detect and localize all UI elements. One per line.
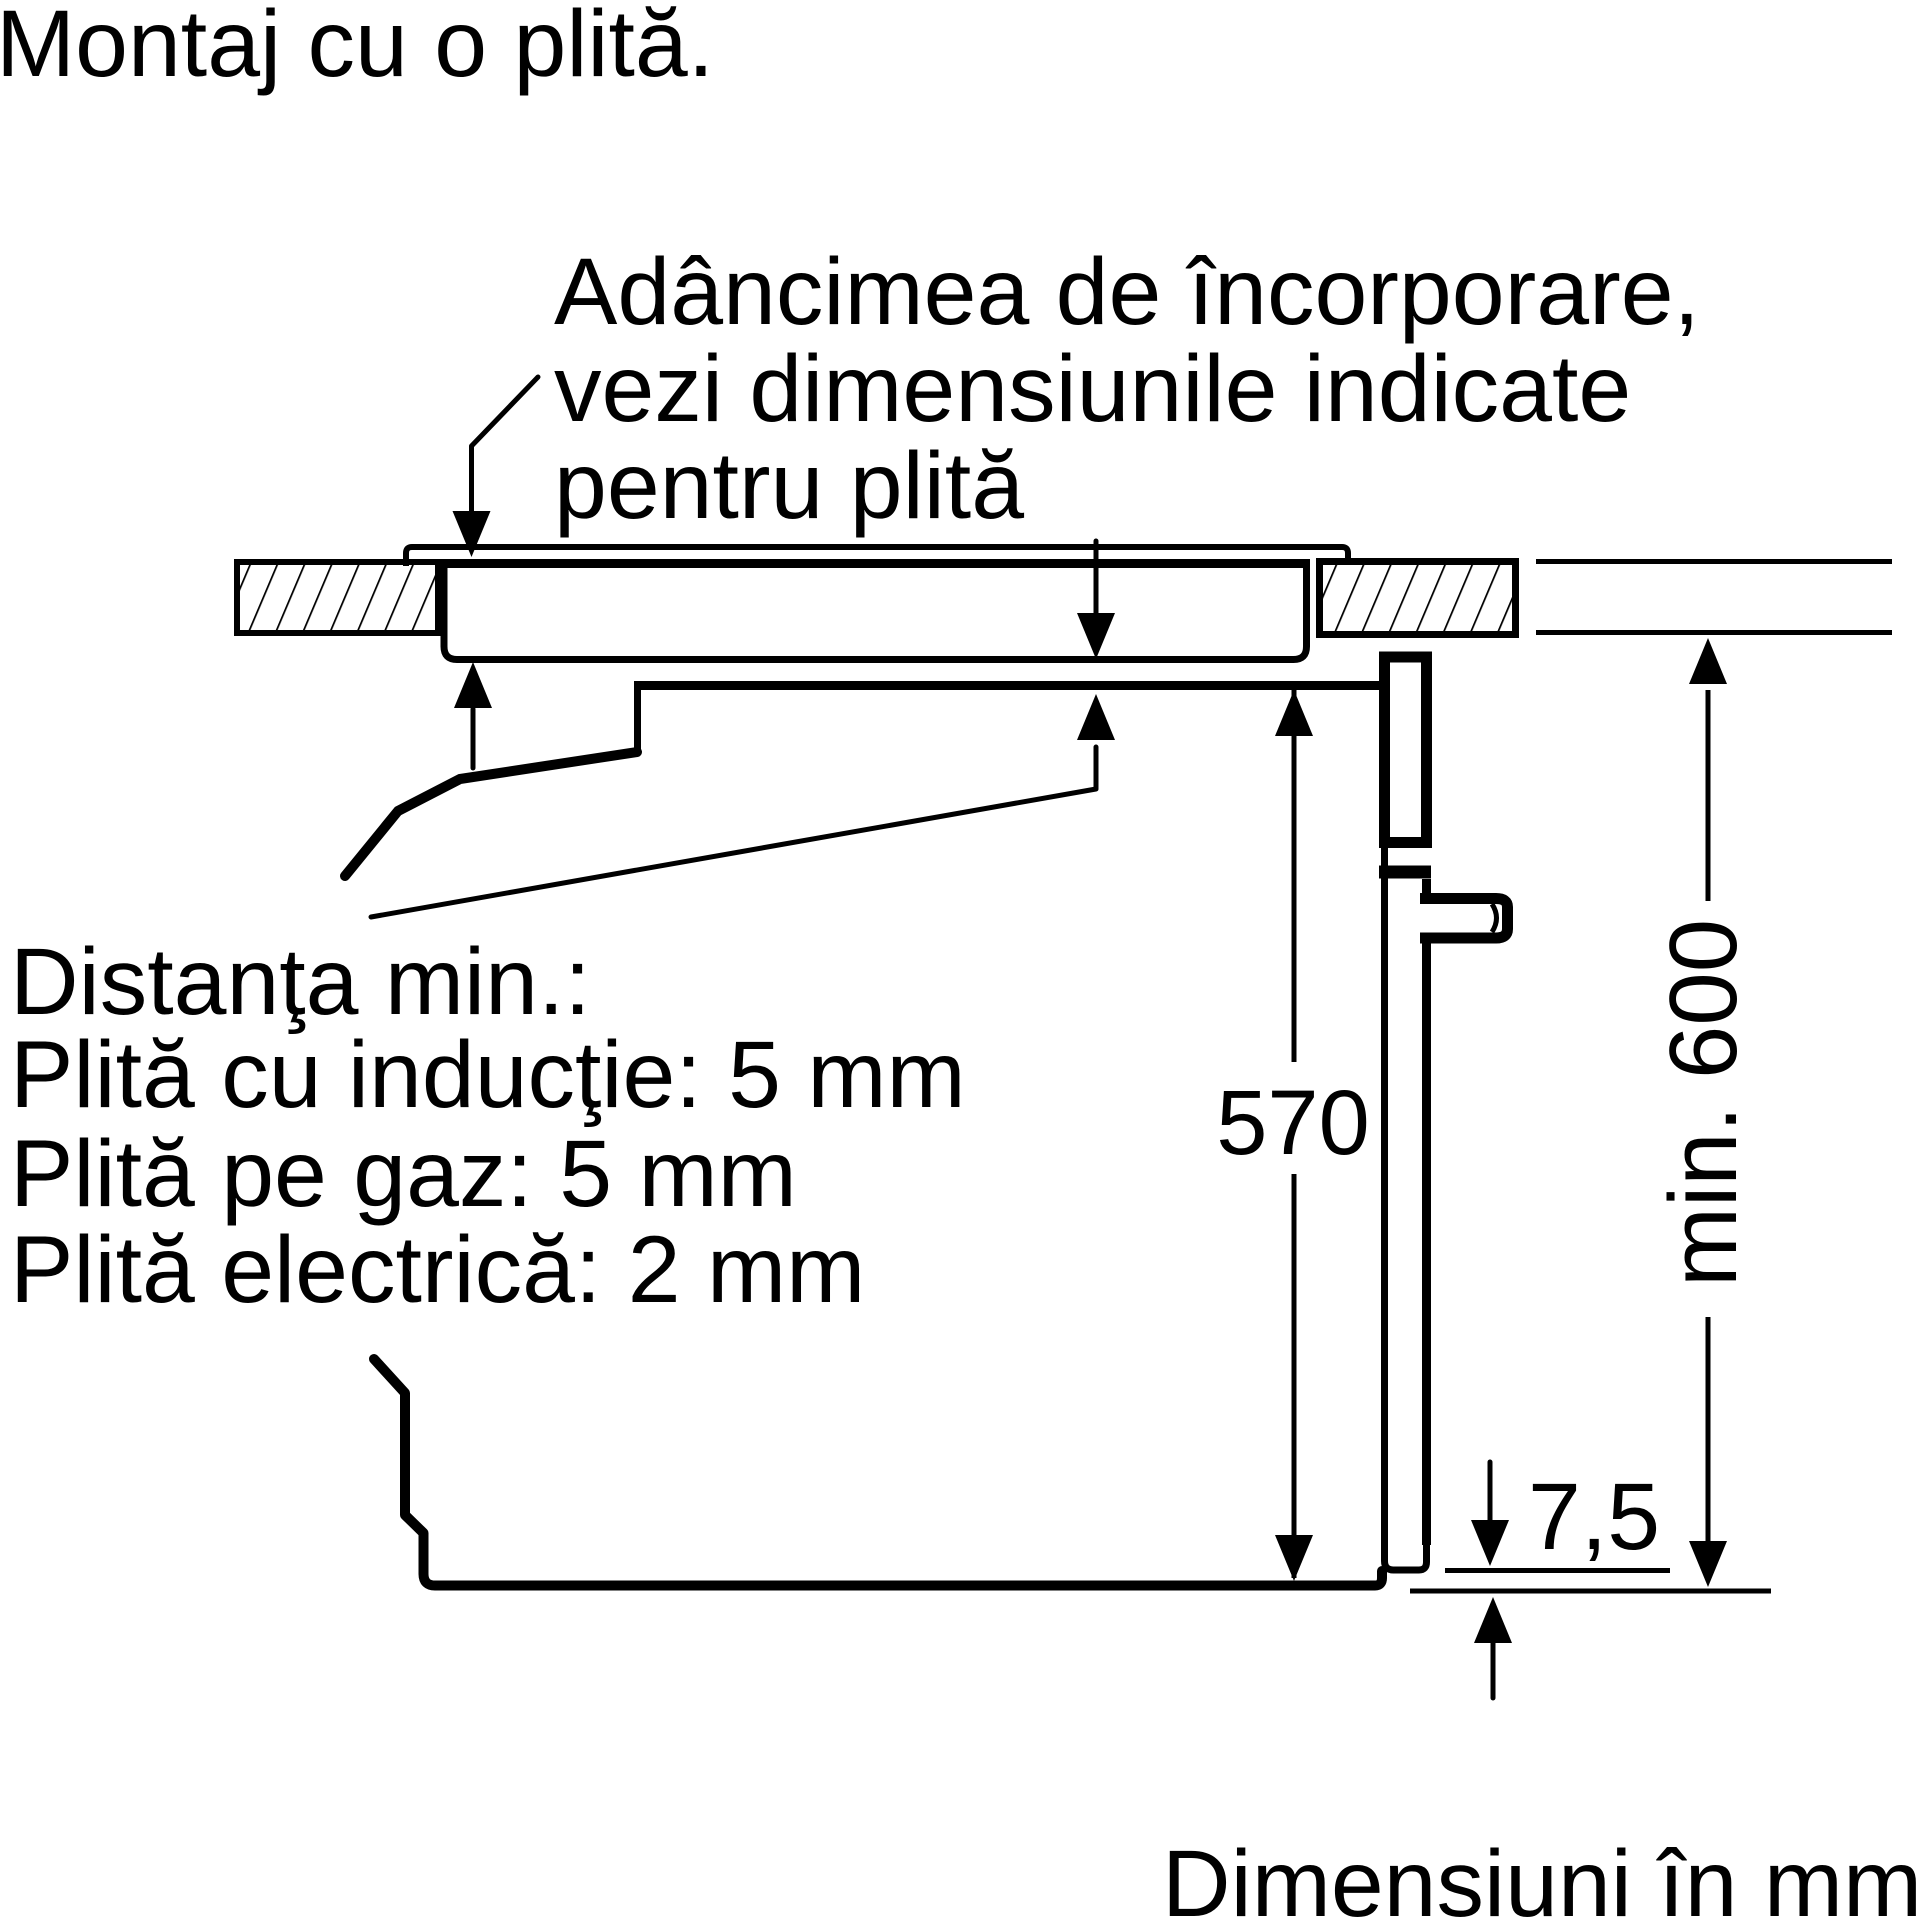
svg-text:Plită pe gaz: 5 mm: Plită pe gaz: 5 mm: [10, 1121, 797, 1227]
svg-text:Adâncimea de încorporare,: Adâncimea de încorporare,: [554, 239, 1700, 345]
svg-text:Distanţa min.:: Distanţa min.:: [10, 929, 591, 1035]
svg-text:7,5: 7,5: [1528, 1464, 1660, 1570]
svg-text:Plită electrică: 2 mm: Plită electrică: 2 mm: [10, 1217, 865, 1323]
svg-text:570: 570: [1216, 1072, 1370, 1174]
svg-text:min. 600: min. 600: [1650, 919, 1757, 1287]
svg-text:Plită cu inducţie: 5 mm: Plită cu inducţie: 5 mm: [10, 1022, 966, 1128]
svg-text:Dimensiuni în mm: Dimensiuni în mm: [1162, 1831, 1920, 1920]
svg-text:Montaj cu o plită.: Montaj cu o plită.: [0, 0, 714, 97]
svg-text:pentru plită: pentru plită: [554, 433, 1024, 539]
svg-text:vezi dimensiunile indicate: vezi dimensiunile indicate: [554, 336, 1631, 442]
